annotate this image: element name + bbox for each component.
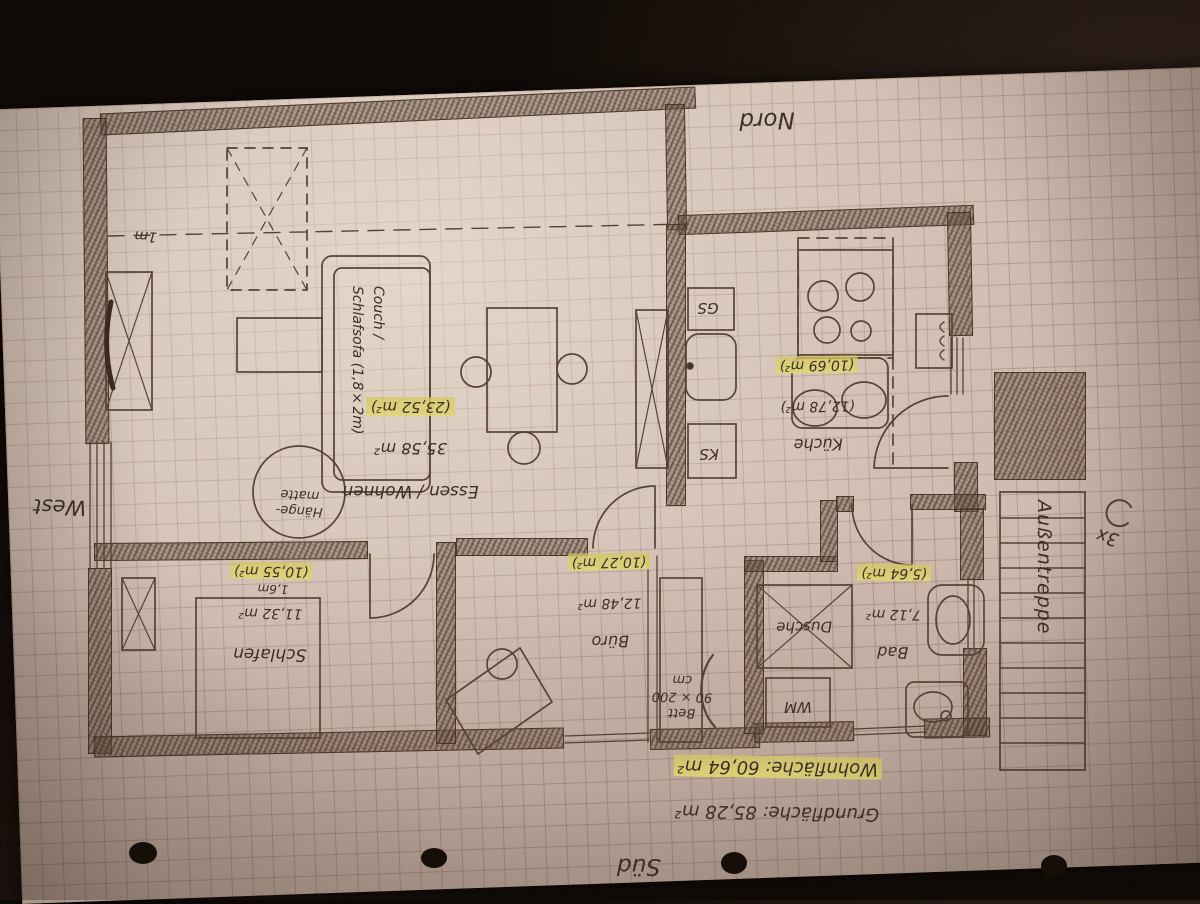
room-label-schlafen: Schlafen 11,32 m² (10,55 m²): [209, 590, 331, 686]
schlafen-name: Schlafen: [210, 641, 330, 664]
burner: [808, 281, 838, 311]
roof-1m-dashed-line: [108, 224, 688, 236]
kueche-net: (10,69 m²): [757, 355, 877, 378]
bed-annotation: Bett 90 × 200 cm: [640, 669, 725, 720]
toilet-bowl: [914, 692, 952, 722]
buero-gross: 12,48 m²: [553, 593, 665, 612]
toilet-niche: [906, 682, 968, 737]
shower-label: Dusche: [760, 605, 849, 637]
outdoor-stairs-label: Außentreppe: [1016, 500, 1058, 772]
dining-chair: [508, 432, 540, 464]
compass-west-label: West: [19, 485, 100, 522]
couch-annotation: Couch / Schlafsofa (1,8×2m): [330, 286, 388, 501]
bad-name: Bad: [843, 641, 943, 663]
window-dark-mark: [107, 302, 113, 388]
schlafen-gross: 11,32 m²: [210, 603, 330, 623]
buero-net: (10,27 m²): [553, 552, 665, 574]
room-label-buero: Büro 12,48 m² (10,27 m²): [553, 580, 667, 672]
coffee-table: [237, 318, 322, 372]
fridge-label: KS: [686, 435, 732, 463]
compass-north-label: Nord: [712, 97, 823, 135]
burner: [846, 273, 874, 301]
wohnflaeche-line: Wohnfläche: 60,64 m²: [673, 754, 882, 780]
area-summary: Grundfläche: 85,28 m² Wohnfläche: 60,64 …: [633, 774, 920, 849]
desk-chair: [487, 649, 517, 679]
desk-tilted: [446, 648, 552, 754]
grundflaeche-line: Grundfläche: 85,28 m²: [634, 799, 920, 826]
roofline-1m-label: 1m: [123, 218, 169, 245]
buero-name: Büro: [554, 630, 666, 652]
bath-south-window-lines: [854, 726, 926, 735]
bedroom-door-arc: [370, 554, 434, 618]
washing-machine-label: WM: [772, 686, 824, 716]
shelf-cross: [636, 310, 668, 468]
compass-south-label: Süd: [594, 841, 685, 881]
south-window-lines: [565, 733, 649, 743]
attic-hatch-cross: [227, 148, 307, 290]
bedroom-window-cross: [122, 578, 155, 650]
dishwasher-label: GS: [686, 291, 730, 317]
kueche-name: Küche: [758, 433, 878, 455]
dining-chair: [557, 354, 587, 384]
kueche-gross: (12,78 m²): [757, 395, 877, 415]
photo-of-floorplan: { "compass": { "north": "Nord", "south":…: [0, 0, 1200, 900]
faucet-dot: [687, 363, 693, 369]
bed-width-label: 1,6m: [246, 575, 301, 597]
toilet-flush: [941, 711, 951, 721]
bad-gross: 7,12 m²: [843, 604, 943, 623]
radiator-waves: [940, 322, 944, 360]
room-label-kueche: Küche (12,78 m²) (10,69 m²): [757, 391, 878, 475]
bad-net: (5,64 m²): [844, 563, 944, 585]
room-label-bad: Bad 7,12 m² (5,64 m²): [842, 595, 943, 683]
floorplan-drawing: Nord West Süd Grundfläche: 85,28 m² Wohn…: [0, 0, 1200, 900]
radiator-box: [916, 314, 952, 368]
